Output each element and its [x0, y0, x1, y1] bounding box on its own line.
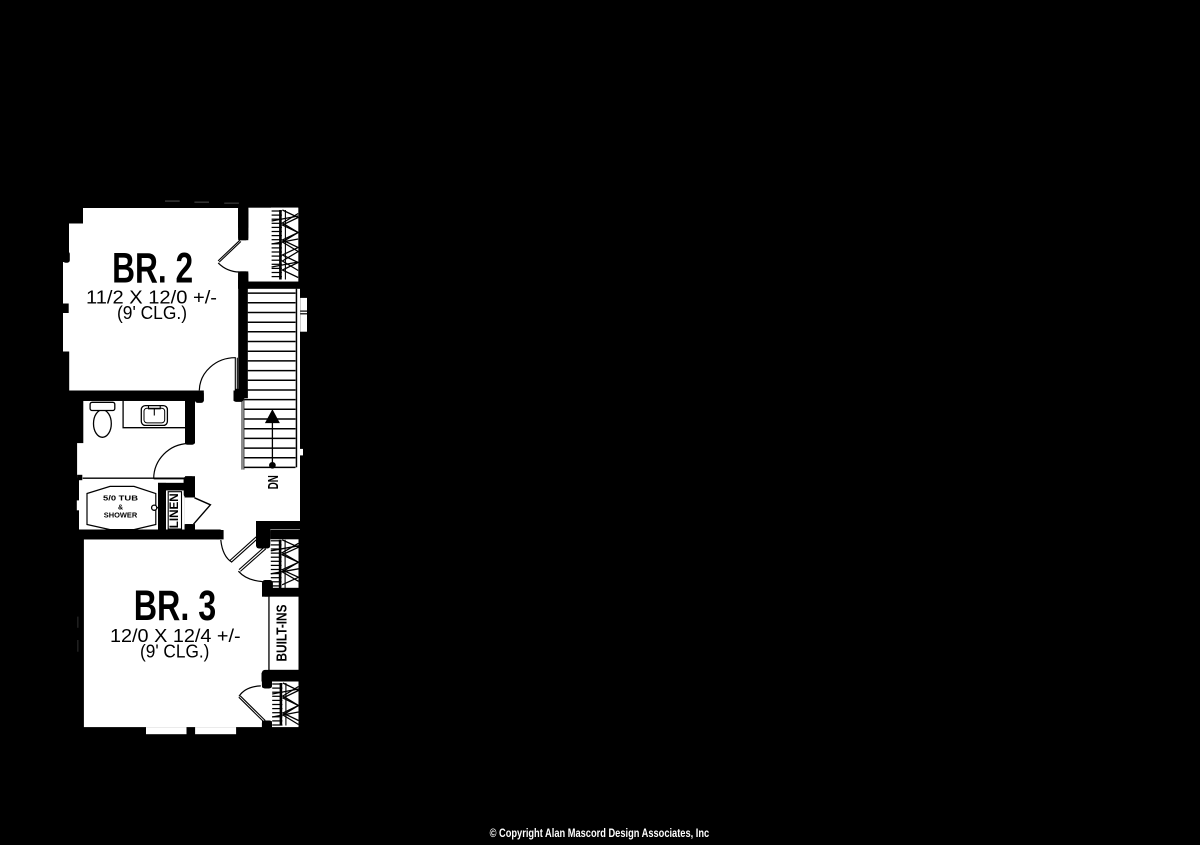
svg-text:&: & [118, 505, 123, 512]
svg-text:5/0 TUB: 5/0 TUB [103, 495, 138, 502]
svg-text:DN: DN [265, 475, 282, 489]
svg-text:SHOWER: SHOWER [104, 512, 138, 519]
svg-text:BR. 3: BR. 3 [134, 583, 217, 630]
svg-text:(9' CLG.): (9' CLG.) [140, 641, 209, 662]
svg-text:© Copyright Alan Mascord Desig: © Copyright Alan Mascord Design Associat… [490, 827, 710, 840]
svg-text:LINEN: LINEN [169, 493, 181, 528]
svg-text:(9' CLG.): (9' CLG.) [117, 302, 187, 323]
svg-text:BR. 2: BR. 2 [112, 246, 193, 293]
svg-text:BUILT-INS: BUILT-INS [274, 605, 291, 662]
